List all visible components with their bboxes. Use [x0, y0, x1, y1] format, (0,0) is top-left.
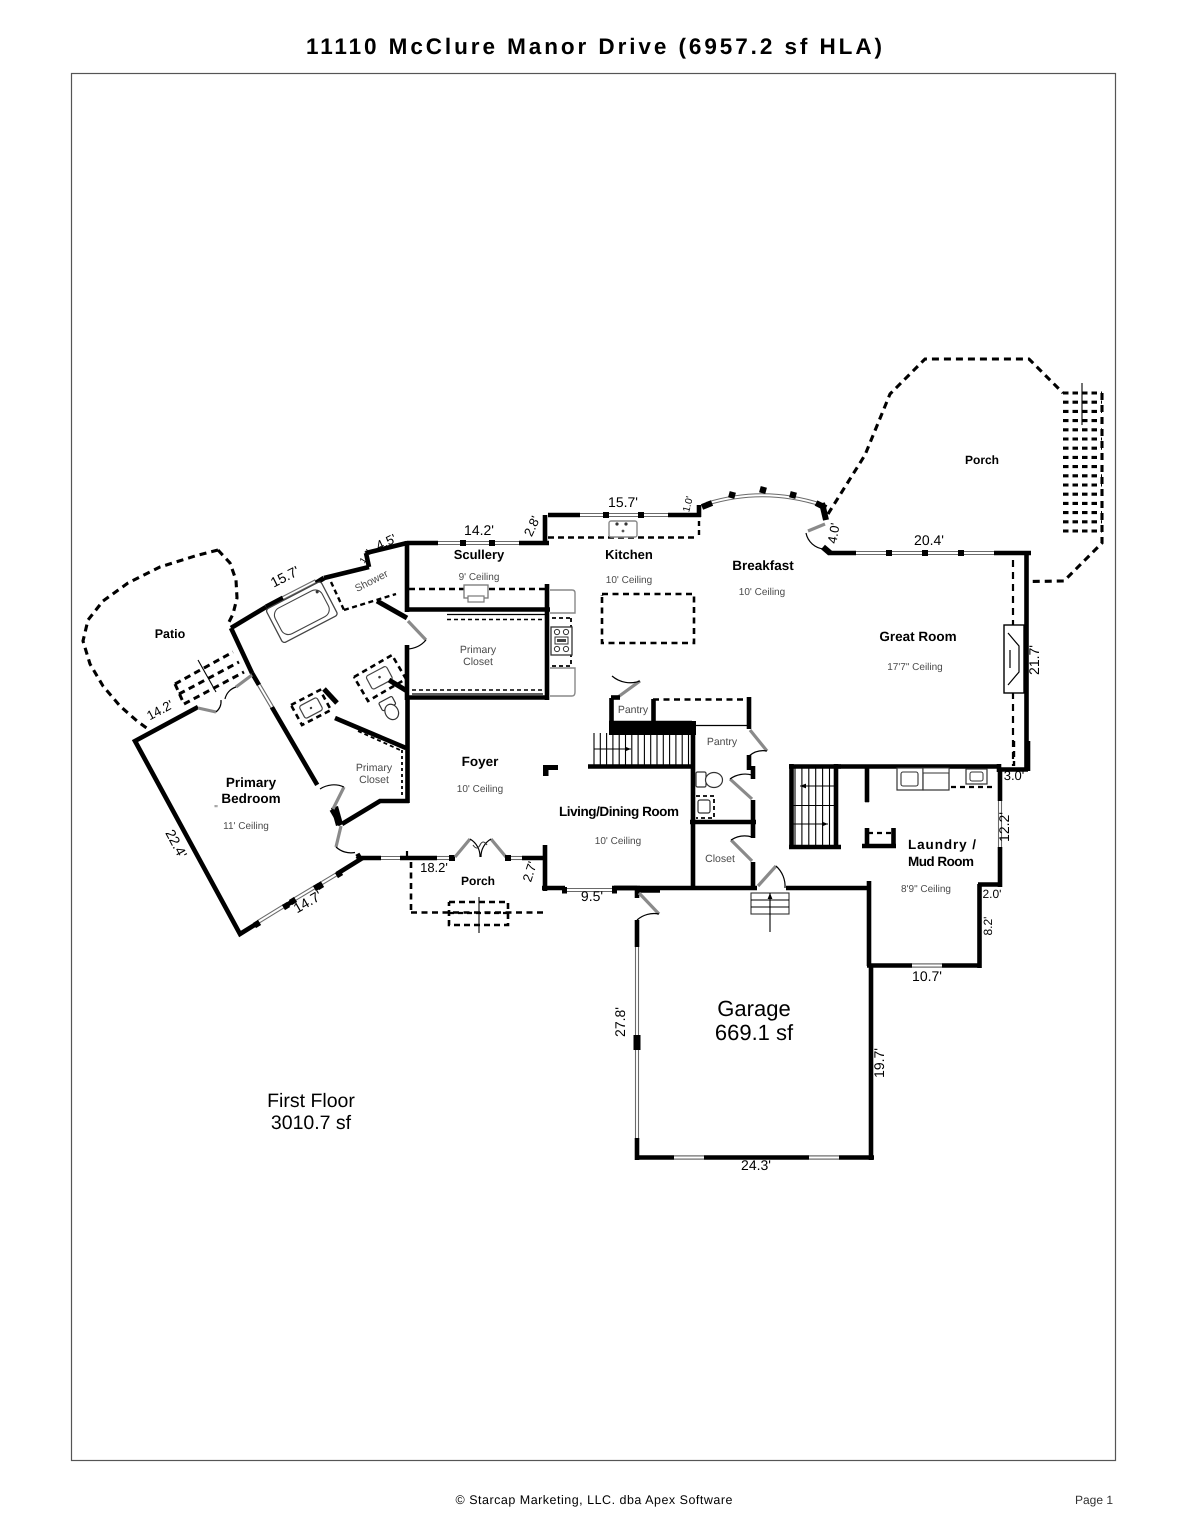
svg-text:Page 1: Page 1 — [1075, 1493, 1113, 1507]
svg-text:Kitchen: Kitchen — [605, 547, 653, 562]
svg-text:Mud Room: Mud Room — [908, 854, 974, 869]
svg-text:Primary: Primary — [356, 762, 393, 774]
svg-text:12.2': 12.2' — [996, 812, 1012, 842]
svg-text:Primary: Primary — [460, 644, 497, 656]
svg-text:Breakfast: Breakfast — [732, 558, 794, 573]
svg-text:Patio: Patio — [155, 627, 186, 641]
svg-text:Living/Dining Room: Living/Dining Room — [559, 804, 679, 819]
svg-text:8.2': 8.2' — [981, 917, 995, 936]
svg-text:669.1 sf: 669.1 sf — [715, 1020, 794, 1045]
svg-text:9.5': 9.5' — [581, 888, 603, 904]
svg-text:21.7': 21.7' — [1026, 645, 1042, 675]
svg-text:3010.7 sf: 3010.7 sf — [271, 1112, 352, 1134]
svg-text:10' Ceiling: 10' Ceiling — [739, 587, 785, 598]
svg-text:Garage: Garage — [717, 996, 790, 1021]
svg-text:20.4': 20.4' — [914, 532, 944, 548]
svg-text:Laundry /: Laundry / — [908, 837, 976, 852]
svg-text:Bedroom: Bedroom — [221, 791, 280, 806]
svg-text:3.0': 3.0' — [1004, 768, 1025, 783]
svg-text:24.3': 24.3' — [741, 1157, 771, 1173]
svg-text:10.7': 10.7' — [912, 968, 942, 984]
svg-text:11' Ceiling: 11' Ceiling — [223, 821, 269, 832]
svg-text:Scullery: Scullery — [454, 547, 505, 562]
svg-text:Porch: Porch — [461, 874, 495, 888]
svg-text:First Floor: First Floor — [267, 1090, 355, 1112]
svg-text:Great Room: Great Room — [879, 629, 956, 644]
svg-text:19.7': 19.7' — [871, 1048, 887, 1078]
svg-text:Foyer: Foyer — [462, 754, 500, 769]
svg-text:15.7': 15.7' — [608, 494, 638, 510]
svg-text:Pantry: Pantry — [618, 704, 649, 716]
svg-text:18.2': 18.2' — [420, 860, 448, 875]
svg-text:17'7" Ceiling: 17'7" Ceiling — [887, 662, 943, 673]
svg-text:27.8': 27.8' — [612, 1007, 628, 1037]
svg-text:10' Ceiling: 10' Ceiling — [606, 575, 652, 586]
svg-text:Closet: Closet — [705, 853, 735, 865]
svg-text:Primary: Primary — [226, 775, 277, 790]
svg-text:11110 McClure Manor Drive (695: 11110 McClure Manor Drive (6957.2 sf HLA… — [306, 34, 882, 59]
svg-text:Pantry: Pantry — [707, 736, 738, 748]
svg-text:Closet: Closet — [463, 656, 493, 668]
svg-text:10' Ceiling: 10' Ceiling — [457, 784, 503, 795]
svg-text:2.0': 2.0' — [983, 887, 1002, 901]
svg-text:Closet: Closet — [359, 774, 389, 786]
svg-text:8'9" Ceiling: 8'9" Ceiling — [901, 884, 951, 895]
svg-text:10' Ceiling: 10' Ceiling — [595, 836, 641, 847]
svg-text:": " — [214, 804, 218, 815]
svg-text:© Starcap Marketing, LLC. dba: © Starcap Marketing, LLC. dba Apex Softw… — [456, 1493, 733, 1507]
svg-text:Porch: Porch — [965, 453, 999, 467]
svg-text:9' Ceiling: 9' Ceiling — [459, 572, 500, 583]
svg-text:14.2': 14.2' — [464, 522, 494, 538]
